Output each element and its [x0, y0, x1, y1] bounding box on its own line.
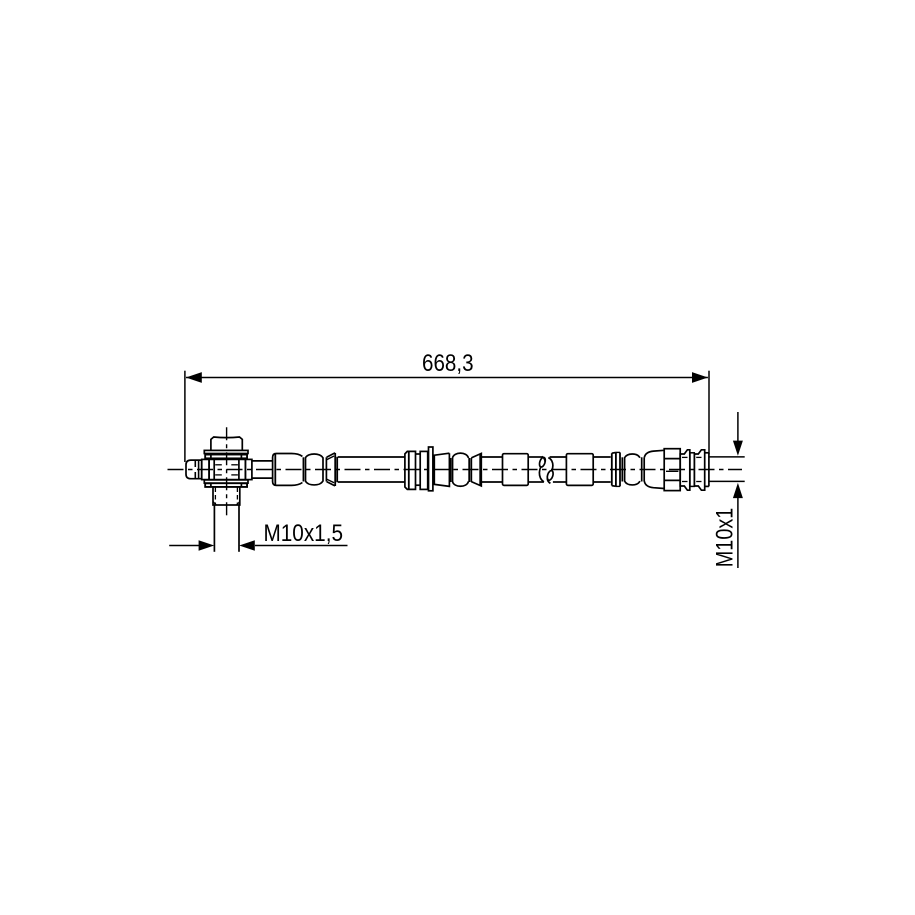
svg-text:M10x1: M10x1	[711, 508, 738, 568]
svg-text:668,3: 668,3	[422, 350, 474, 377]
svg-text:M10x1,5: M10x1,5	[264, 520, 344, 547]
